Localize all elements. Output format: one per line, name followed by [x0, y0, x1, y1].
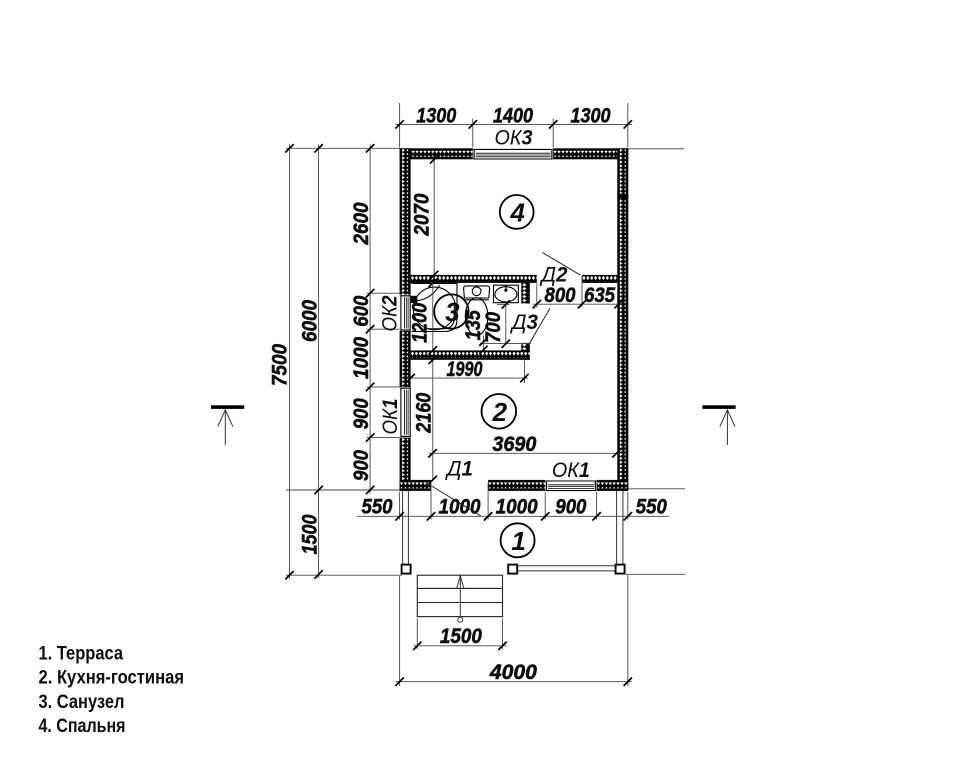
svg-text:ОК2: ОК2	[379, 295, 402, 331]
svg-text:4: 4	[509, 197, 525, 227]
svg-text:3690: 3690	[492, 433, 536, 456]
svg-text:2600: 2600	[350, 202, 373, 245]
svg-text:7500: 7500	[269, 344, 292, 386]
svg-text:1500: 1500	[299, 514, 322, 554]
svg-text:4. Спальня: 4. Спальня	[39, 716, 126, 737]
svg-text:4000: 4000	[489, 661, 537, 684]
svg-text:ОК3: ОК3	[495, 127, 533, 150]
svg-text:ОК1: ОК1	[552, 459, 590, 482]
svg-text:2: 2	[492, 397, 508, 427]
svg-text:1. Терраса: 1. Терраса	[39, 644, 124, 665]
svg-text:1300: 1300	[571, 104, 611, 127]
svg-text:900: 900	[555, 496, 586, 519]
svg-text:1400: 1400	[493, 104, 533, 127]
svg-text:1: 1	[511, 526, 525, 556]
svg-text:Д3: Д3	[510, 311, 538, 334]
svg-text:550: 550	[636, 496, 667, 519]
svg-text:ОК1: ОК1	[379, 399, 402, 435]
svg-text:1300: 1300	[416, 104, 456, 127]
svg-text:1000: 1000	[439, 496, 481, 519]
svg-text:Д1: Д1	[445, 458, 473, 481]
svg-text:2070: 2070	[411, 193, 434, 236]
svg-text:3: 3	[445, 297, 460, 327]
svg-text:635: 635	[584, 284, 615, 307]
svg-text:1000: 1000	[496, 496, 538, 519]
svg-text:900: 900	[350, 398, 373, 429]
svg-text:700: 700	[482, 312, 505, 343]
svg-text:2. Кухня-гостиная: 2. Кухня-гостиная	[39, 668, 185, 689]
svg-text:6000: 6000	[298, 300, 321, 342]
svg-text:800: 800	[545, 284, 576, 307]
svg-text:Д2: Д2	[540, 264, 568, 287]
svg-text:1200: 1200	[409, 303, 432, 343]
svg-text:1000: 1000	[350, 337, 373, 379]
svg-text:600: 600	[350, 295, 373, 326]
svg-text:550: 550	[362, 496, 393, 519]
svg-text:3. Санузел: 3. Санузел	[39, 692, 125, 713]
svg-text:2160: 2160	[413, 393, 436, 434]
svg-text:1500: 1500	[440, 625, 482, 648]
svg-text:1990: 1990	[447, 358, 483, 381]
svg-text:900: 900	[350, 450, 373, 481]
